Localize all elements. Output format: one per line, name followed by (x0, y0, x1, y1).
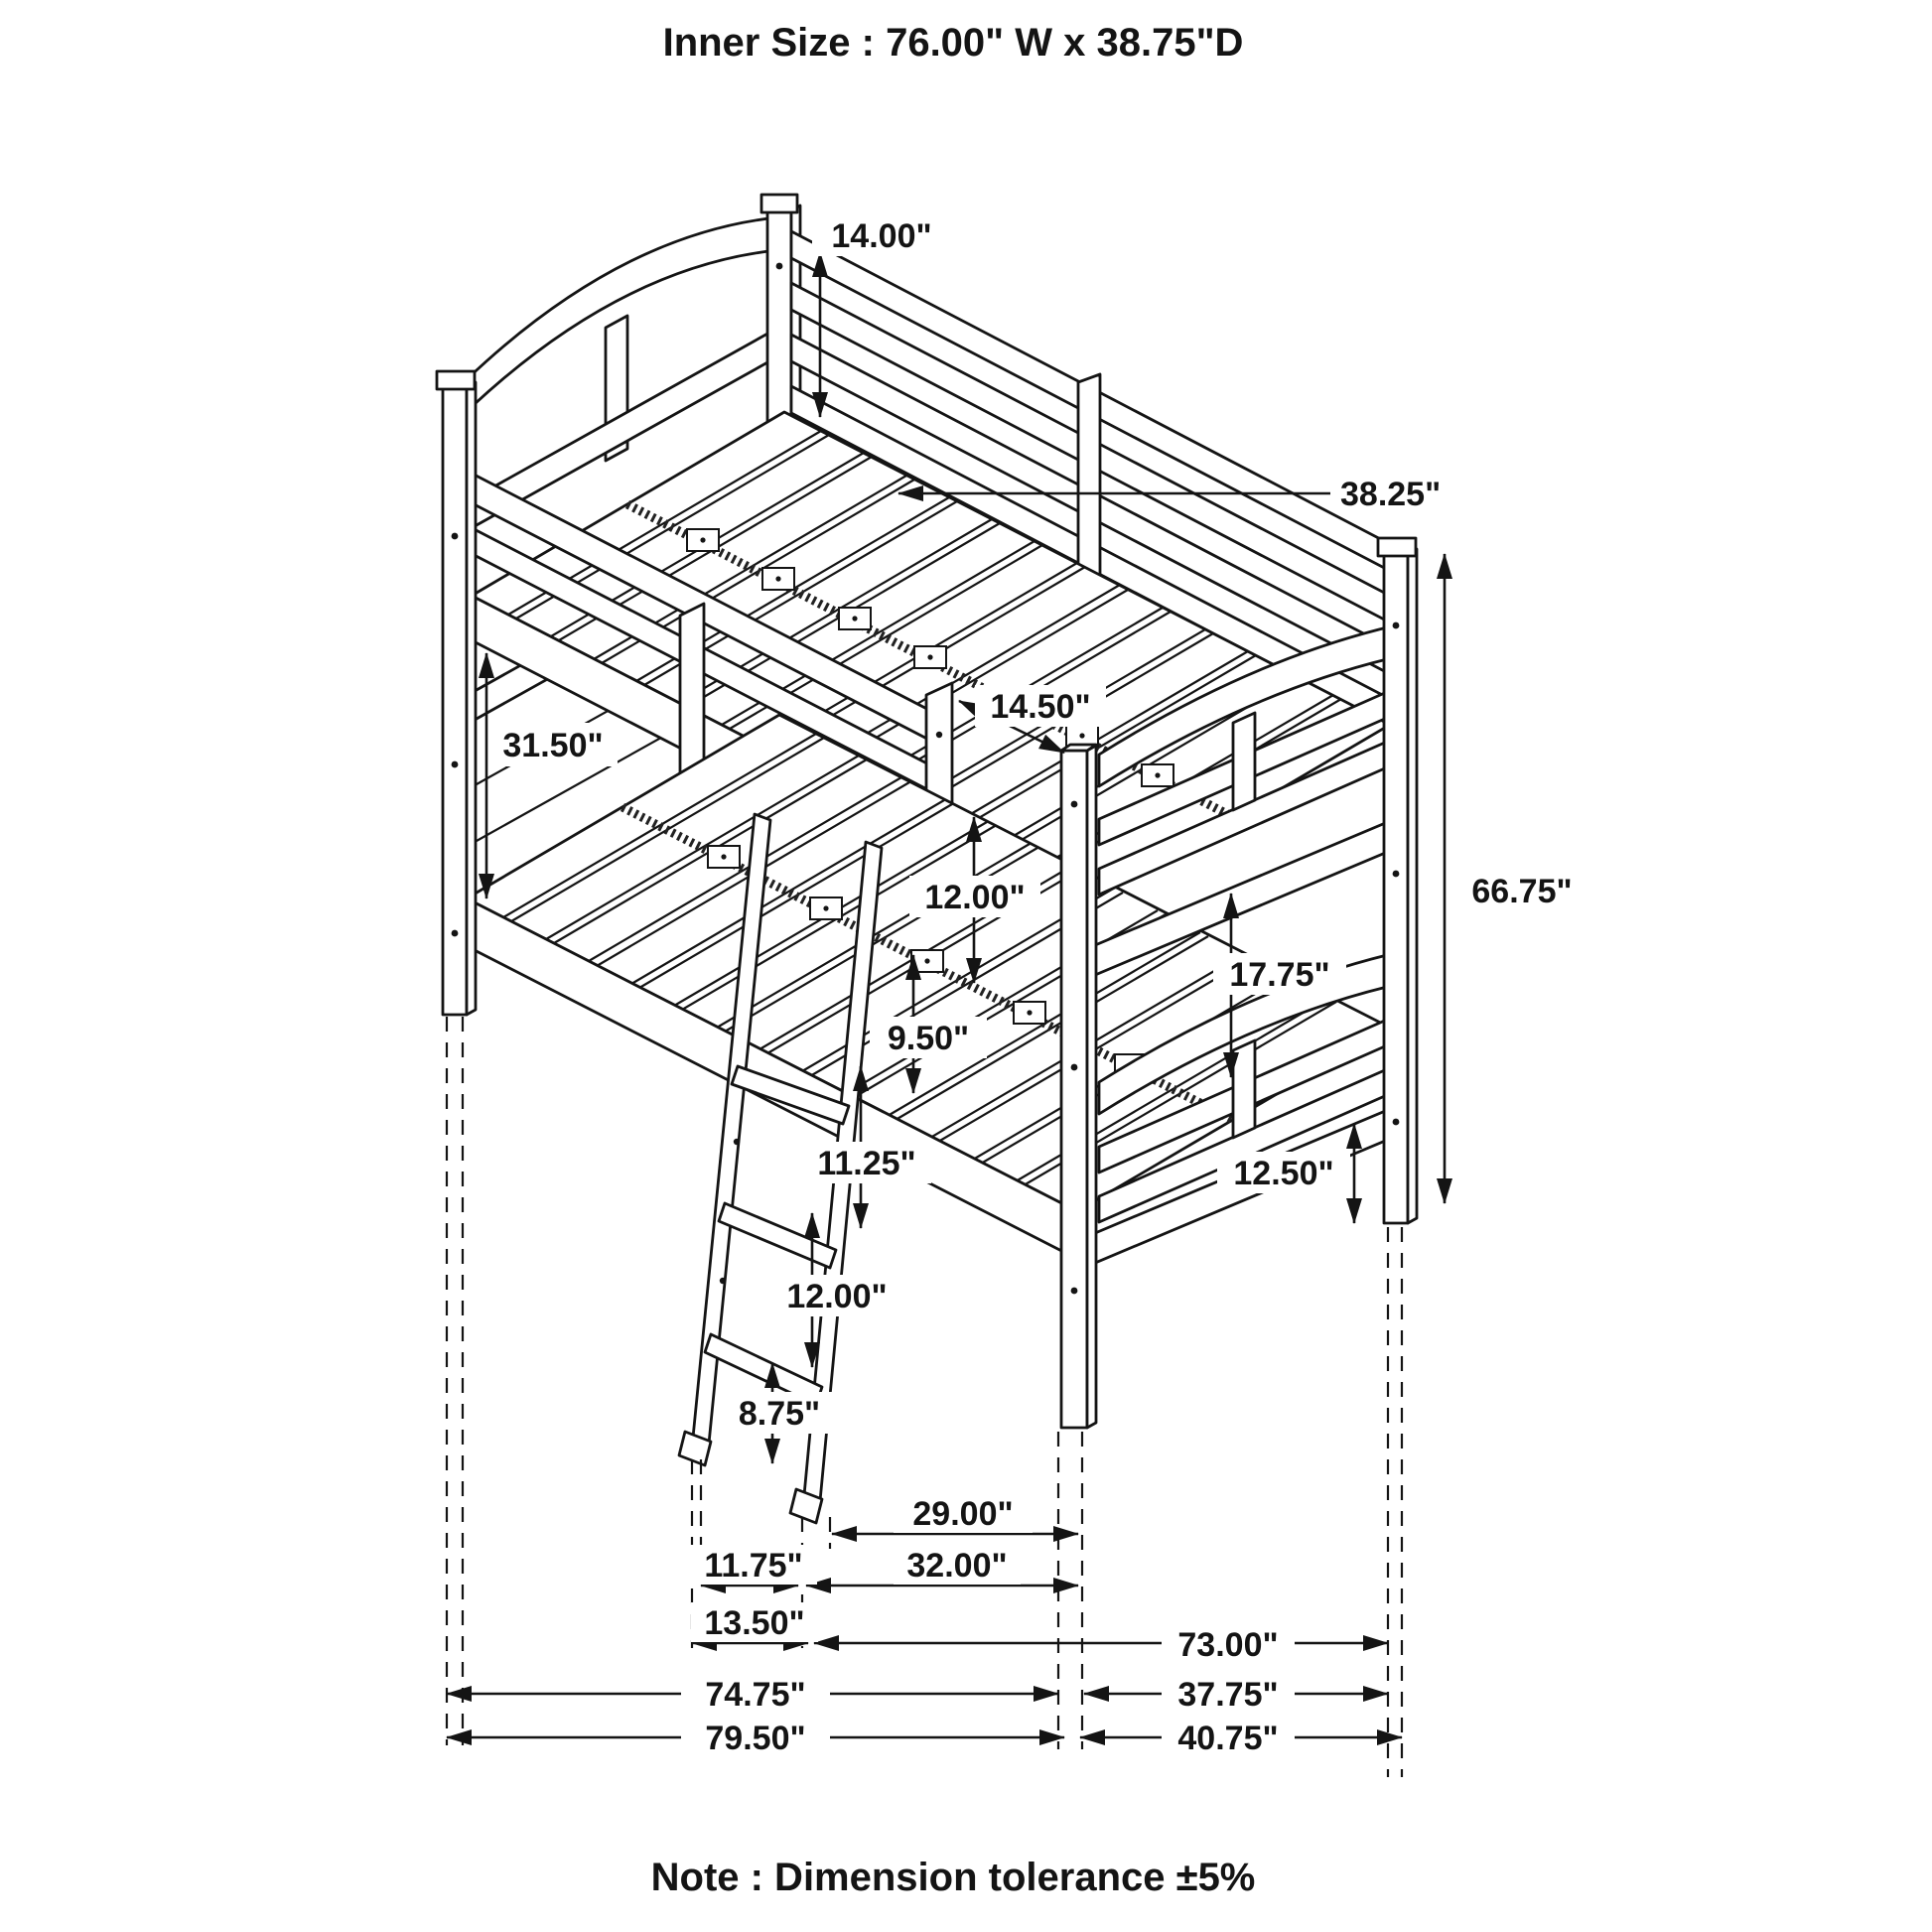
page-title: Inner Size : 76.00" W x 38.75"D (663, 21, 1244, 65)
lower-footboard-mullion (1233, 1040, 1255, 1138)
dim-frame-depth-inner: 37.75" (1177, 1676, 1278, 1714)
dim-ladder-to-foot-post-outer: 32.00" (906, 1547, 1007, 1585)
back-foot-post-projection (1388, 1227, 1402, 1777)
front-head-post (437, 371, 476, 1015)
front-foot-post (1061, 745, 1096, 1428)
dim-bunk-clearance: 31.50" (502, 727, 603, 764)
dim-ladder-gap-bottom: 8.75" (739, 1395, 820, 1433)
dim-overall-height: 66.75" (1471, 873, 1572, 910)
dim-foot-panel-height: 17.75" (1229, 956, 1329, 994)
dimension-diagram-page: Inner Size : 76.00" W x 38.75"D (0, 0, 1932, 1932)
bunk-bed-dimension-diagram: Inner Size : 76.00" W x 38.75"D (0, 0, 1932, 1932)
dim-guard-opening-height: 12.00" (924, 879, 1025, 916)
back-foot-post (1378, 538, 1417, 1223)
dim-ladder-inner-width: 11.75" (704, 1547, 802, 1585)
ladder-step-2 (719, 1203, 836, 1268)
dim-slat-depth: 38.25" (1340, 476, 1441, 513)
dim-ladder-gap-top: 9.50" (888, 1020, 969, 1057)
dim-frame-length-overall: 79.50" (705, 1720, 805, 1757)
dim-frame-length-inner: 73.00" (1177, 1626, 1278, 1664)
tolerance-note: Note : Dimension tolerance ±5% (651, 1856, 1256, 1899)
upper-footboard-mullion (1233, 713, 1255, 810)
dim-ladder-gap-3: 12.00" (786, 1278, 887, 1315)
dim-ladder-to-foot-post: 29.00" (912, 1495, 1013, 1533)
dim-ladder-gap-2: 11.25" (817, 1145, 915, 1182)
post-cap (761, 195, 797, 212)
dim-guard-post-height: 14.50" (990, 688, 1090, 726)
guard-mid-support (680, 604, 704, 776)
dim-upper-guard-height: 14.00" (831, 217, 931, 255)
foot-post-projection (1058, 1432, 1082, 1749)
dim-ladder-outer-width: 13.50" (704, 1604, 804, 1642)
head-post-projection (447, 1017, 463, 1745)
dim-foot-rail-height: 12.50" (1233, 1155, 1333, 1192)
dim-frame-length-mid: 74.75" (705, 1676, 805, 1714)
dim-frame-depth-overall: 40.75" (1177, 1720, 1278, 1757)
